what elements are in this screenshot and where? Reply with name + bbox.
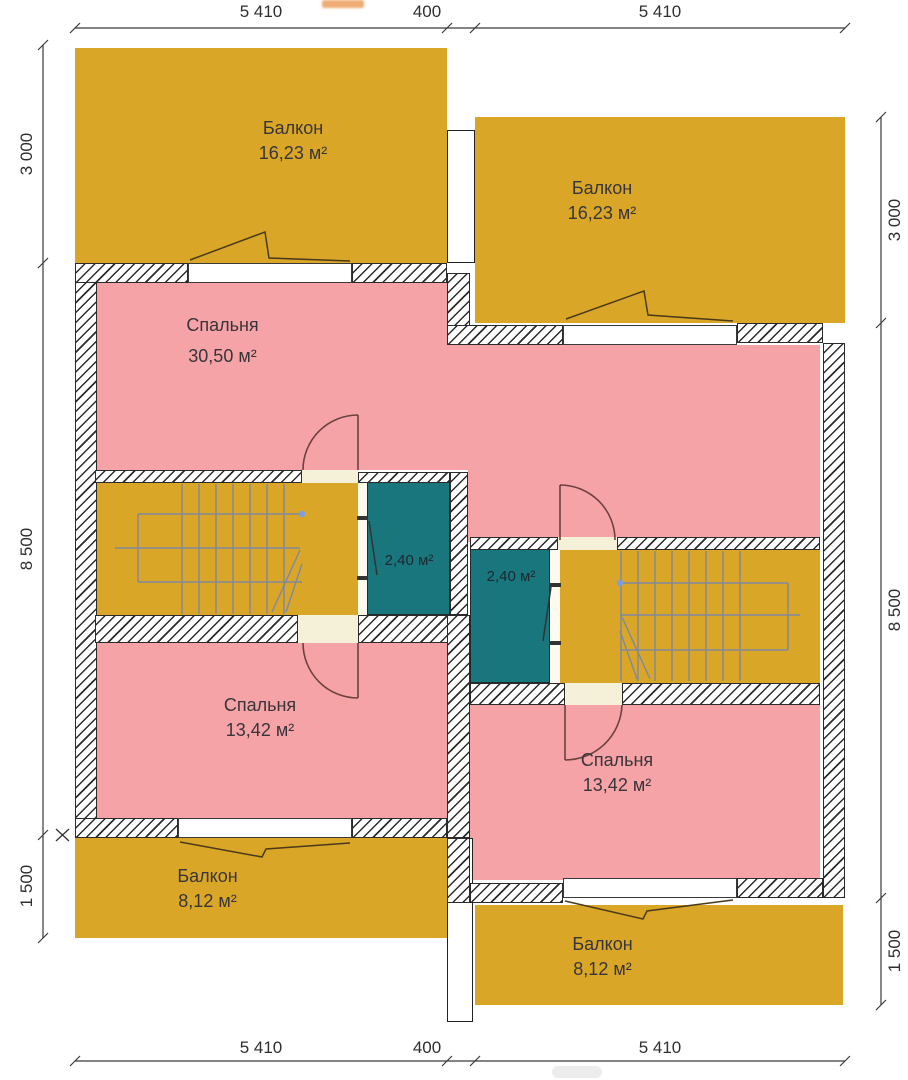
dim-left-2: 8 500: [17, 509, 37, 589]
staircase-right: [620, 551, 800, 681]
dim-right-1: 3 000: [885, 180, 905, 260]
staircase-left: [115, 484, 302, 614]
stair-direction-dot-right: [617, 580, 623, 586]
room-name: Спальня: [537, 748, 697, 773]
dim-bottom-2: 400: [397, 1038, 457, 1058]
stair-direction-dot-left: [299, 511, 305, 517]
corner-x-mark: [56, 829, 69, 841]
dim-right-2: 8 500: [885, 570, 905, 650]
dim-left-3: 1 500: [17, 846, 37, 926]
dim-left-1: 3 000: [17, 114, 37, 194]
floor-plan: Балкон 16,23 м² Балкон 16,23 м² Спальня …: [0, 0, 908, 1080]
clipped-orange-text-artifact: [322, 0, 364, 8]
room-name: Балкон: [140, 864, 275, 889]
room-area: 13,42 м²: [180, 718, 340, 743]
room-area: 16,23 м²: [522, 201, 682, 226]
bedroom-main-label: Спальня 30,50 м²: [140, 313, 305, 369]
balcony-bottom-left-label: Балкон 8,12 м²: [140, 864, 275, 914]
bedroom-bottom-left-label: Спальня 13,42 м²: [180, 693, 340, 743]
room-area: 16,23 м²: [213, 141, 373, 166]
room-name: Балкон: [535, 932, 670, 957]
dim-top-1: 5 410: [211, 2, 311, 22]
storage-right-label: 2,40 м²: [468, 568, 554, 585]
balcony-bottom-right-label: Балкон 8,12 м²: [535, 932, 670, 982]
dim-bottom-1: 5 410: [211, 1038, 311, 1058]
room-area: 8,12 м²: [535, 957, 670, 982]
room-area: 30,50 м²: [140, 344, 305, 369]
room-area: 13,42 м²: [537, 773, 697, 798]
room-name: Спальня: [180, 693, 340, 718]
storage-left-label: 2,40 м²: [365, 552, 453, 569]
door-arcs: [303, 415, 622, 760]
gray-smudge-artifact: [552, 1066, 602, 1078]
room-area: 8,12 м²: [140, 889, 275, 914]
balcony-top-left-label: Балкон 16,23 м²: [213, 116, 373, 166]
dim-bottom-3: 5 410: [610, 1038, 710, 1058]
bedroom-bottom-right-label: Спальня 13,42 м²: [537, 748, 697, 798]
room-name: Балкон: [213, 116, 373, 141]
dim-top-3: 5 410: [610, 2, 710, 22]
plan-linework: [0, 0, 908, 1080]
dim-right-3: 1 500: [885, 911, 905, 991]
balcony-top-right-label: Балкон 16,23 м²: [522, 176, 682, 226]
dim-top-2: 400: [397, 2, 457, 22]
room-name: Балкон: [522, 176, 682, 201]
room-name: Спальня: [140, 313, 305, 338]
